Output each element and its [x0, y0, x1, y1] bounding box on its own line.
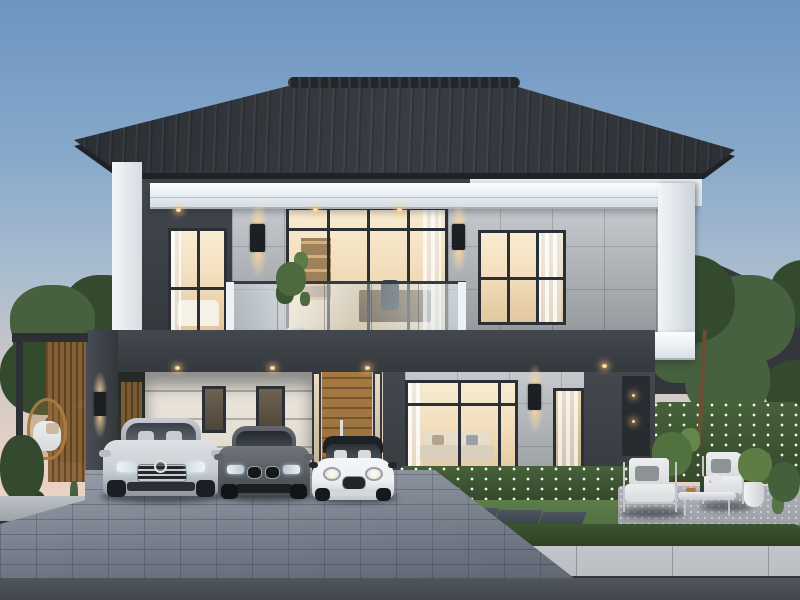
- window-transom: [171, 287, 224, 290]
- architectural-rendering: [0, 0, 800, 600]
- shrubs-left: [0, 435, 44, 501]
- car-lower-intake: [127, 482, 195, 491]
- chair-pillow: [635, 466, 659, 481]
- dining-curtain: [558, 391, 578, 469]
- asphalt-road: [0, 576, 800, 600]
- canopy-band: [150, 183, 695, 209]
- table-leg: [684, 500, 686, 516]
- canopy-downlight: [176, 208, 181, 212]
- car-bumper: [326, 489, 380, 496]
- bedroom-window: [168, 228, 227, 333]
- sconce-glow: [527, 364, 543, 386]
- pergola-beam: [12, 333, 88, 342]
- car-kidney-grille: [247, 466, 262, 479]
- wall-sconce: [250, 224, 265, 252]
- wine-bottle: [700, 476, 704, 492]
- sconce-glow: [249, 201, 267, 225]
- window-transom: [481, 277, 563, 280]
- car-wheel: [315, 488, 330, 501]
- carport-downlight: [175, 366, 180, 370]
- door-light: [632, 394, 635, 397]
- car-mirror: [388, 462, 397, 468]
- chair-frame: [675, 462, 677, 512]
- table-leg: [728, 500, 730, 516]
- car-headlight: [186, 462, 205, 472]
- car-emblem: [154, 460, 167, 473]
- sofa-pillow: [466, 435, 478, 445]
- coffee-table: [678, 486, 736, 516]
- porch-downlight: [365, 366, 370, 370]
- car-wheel: [196, 480, 215, 497]
- first-floor-header-beam: [85, 330, 655, 372]
- car-mirror: [214, 454, 224, 460]
- utility-door: [622, 376, 650, 456]
- sconce-glow: [93, 372, 107, 392]
- table-top: [678, 492, 736, 500]
- chair-frame: [623, 502, 677, 504]
- egg-chair-cord: [46, 342, 48, 400]
- car-headlight: [227, 465, 244, 474]
- chair-pillow: [711, 459, 731, 473]
- guest-room-window: [478, 230, 566, 325]
- corner-plants: [768, 462, 800, 502]
- living-room-window: [405, 380, 518, 479]
- balcony-glass-railing: [230, 281, 466, 337]
- car-graphite-sedan: [218, 426, 310, 498]
- wall-sconce: [452, 224, 465, 250]
- car-wheel: [376, 488, 391, 501]
- roof-ridge-cap: [288, 77, 520, 88]
- egg-chair-pillow: [46, 423, 59, 434]
- car-wheel: [107, 480, 126, 497]
- terrace-downlight: [602, 364, 607, 368]
- car-lower-intake: [236, 484, 292, 493]
- car-kidney-grille: [265, 466, 280, 479]
- window-transom: [408, 403, 515, 406]
- car-silver-sedan: [103, 418, 219, 498]
- second-floor-side-edge: [112, 162, 142, 334]
- planter-plant: [738, 448, 772, 482]
- carport-downlight: [270, 366, 275, 370]
- bedroom-curtain: [171, 231, 181, 330]
- flower-bouquet: [710, 474, 722, 484]
- balcony-plant-foliage: [276, 262, 306, 296]
- sconce-glow: [249, 252, 267, 278]
- patio-armchair: [623, 458, 679, 514]
- car-white-mini: [312, 436, 394, 500]
- ground-wall-sconce: [528, 384, 541, 410]
- railing-end-post: [458, 282, 466, 334]
- window-mullion: [197, 231, 200, 330]
- sconce-glow: [451, 250, 467, 274]
- sconce-glow: [527, 410, 543, 434]
- living-curtain: [408, 383, 422, 476]
- white-planter-pot: [744, 482, 764, 507]
- column-sconce: [94, 392, 106, 416]
- car-headlight: [283, 465, 300, 474]
- car-headlight: [117, 462, 136, 472]
- car-headlight: [365, 467, 383, 481]
- dining-window: [553, 388, 584, 472]
- window-mullion: [498, 383, 501, 476]
- corner-fin-white: [658, 183, 695, 348]
- chair-frame: [623, 462, 625, 512]
- car-mirror: [99, 450, 111, 457]
- window-mullion: [458, 383, 461, 476]
- car-mirror: [309, 462, 318, 468]
- sconce-glow: [451, 203, 467, 225]
- chair-seat-cushion: [625, 484, 675, 502]
- door-light: [632, 420, 635, 423]
- car-wheel: [290, 484, 307, 499]
- car-grille: [342, 476, 366, 490]
- sofa-seat: [420, 445, 494, 461]
- car-wheel: [221, 484, 238, 499]
- canopy-downlight: [313, 208, 318, 212]
- sofa-pillow: [432, 435, 444, 445]
- railing-end-post: [226, 282, 234, 334]
- car-headlight: [323, 467, 341, 481]
- fruit-plate: [686, 488, 696, 492]
- canopy-downlight: [397, 208, 402, 212]
